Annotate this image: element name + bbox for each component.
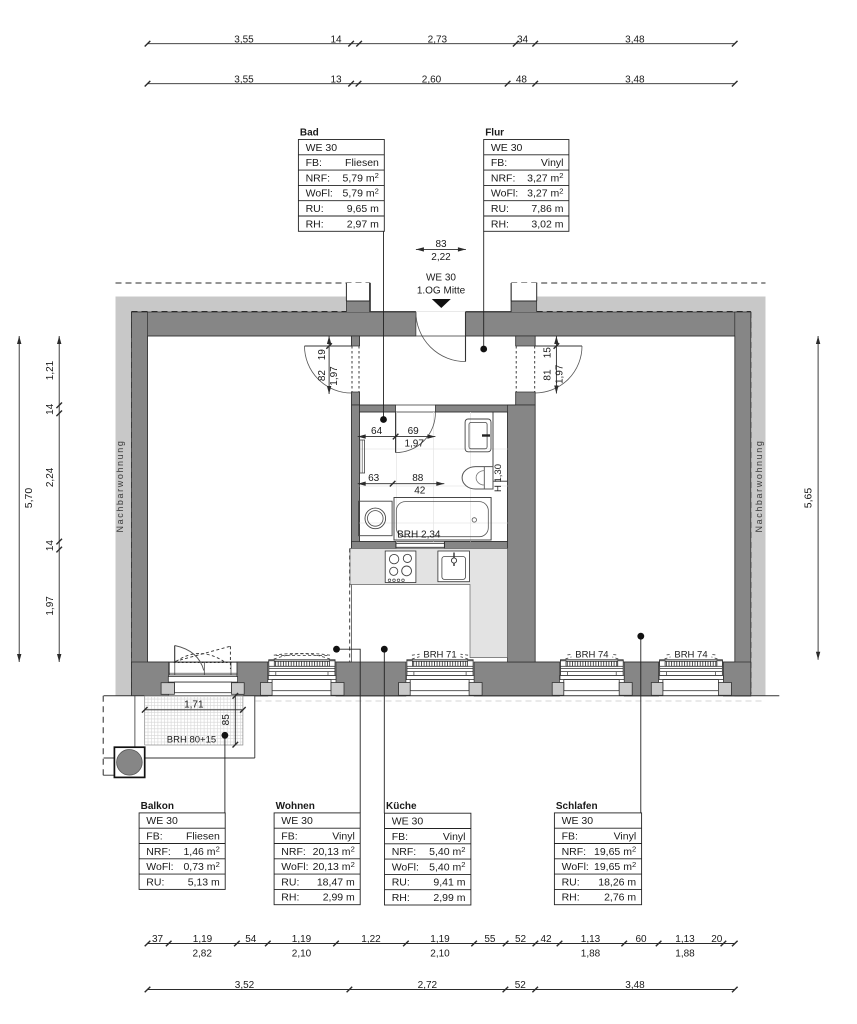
svg-text:WoFl:: WoFl: — [146, 861, 173, 873]
svg-text:69: 69 — [408, 426, 420, 437]
svg-text:WoFl:: WoFl: — [562, 861, 589, 873]
svg-text:3,27 m2: 3,27 m2 — [527, 187, 563, 200]
svg-text:1,88: 1,88 — [581, 949, 601, 960]
svg-text:55: 55 — [484, 934, 496, 945]
svg-text:RH:: RH: — [491, 218, 509, 230]
svg-text:3,48: 3,48 — [625, 74, 645, 85]
svg-text:3,48: 3,48 — [625, 980, 645, 991]
svg-text:1,88: 1,88 — [675, 949, 695, 960]
svg-text:1,97: 1,97 — [45, 596, 56, 616]
svg-text:RH:: RH: — [392, 892, 410, 904]
svg-text:7,86 m: 7,86 m — [531, 203, 563, 215]
svg-text:14: 14 — [45, 540, 56, 552]
svg-text:37: 37 — [152, 934, 164, 945]
svg-text:85: 85 — [221, 714, 232, 726]
svg-text:15: 15 — [542, 347, 553, 359]
svg-text:1,19: 1,19 — [193, 934, 213, 945]
svg-text:WE 30: WE 30 — [281, 815, 313, 827]
svg-text:1,46 m2: 1,46 m2 — [183, 845, 219, 858]
svg-text:20: 20 — [711, 934, 723, 945]
svg-text:WE 30: WE 30 — [491, 142, 523, 154]
svg-text:42: 42 — [414, 485, 426, 496]
svg-text:2,73: 2,73 — [428, 34, 448, 45]
svg-text:BRH 74: BRH 74 — [674, 650, 707, 661]
svg-text:5,40 m2: 5,40 m2 — [429, 845, 465, 858]
svg-text:3,52: 3,52 — [235, 980, 255, 991]
svg-text:FB:: FB: — [281, 831, 297, 843]
svg-text:1,21: 1,21 — [45, 360, 56, 380]
svg-text:1,22: 1,22 — [361, 934, 381, 945]
svg-text:Vinyl: Vinyl — [332, 831, 355, 843]
svg-text:5,65: 5,65 — [803, 488, 815, 509]
svg-text:RU:: RU: — [281, 876, 299, 888]
svg-text:WE 30: WE 30 — [392, 816, 424, 828]
svg-text:NRF:: NRF: — [562, 846, 587, 858]
svg-text:81: 81 — [542, 369, 553, 381]
svg-text:3,55: 3,55 — [234, 34, 254, 45]
svg-text:0,73 m2: 0,73 m2 — [183, 860, 219, 873]
svg-text:NRF:: NRF: — [281, 846, 306, 858]
svg-text:WoFl:: WoFl: — [392, 861, 419, 873]
svg-text:1,19: 1,19 — [292, 934, 312, 945]
svg-text:WE 30: WE 30 — [146, 815, 178, 827]
svg-text:42: 42 — [540, 934, 552, 945]
svg-text:1,19: 1,19 — [430, 934, 450, 945]
svg-text:NRF:: NRF: — [146, 846, 171, 858]
svg-text:82: 82 — [317, 370, 328, 382]
svg-text:48: 48 — [516, 74, 528, 85]
svg-text:5,40 m2: 5,40 m2 — [429, 860, 465, 873]
svg-text:18,26 m: 18,26 m — [598, 876, 636, 888]
svg-text:FB:: FB: — [146, 831, 162, 843]
svg-text:NRF:: NRF: — [392, 846, 417, 858]
svg-text:2,82: 2,82 — [192, 949, 212, 960]
svg-text:Bad: Bad — [300, 128, 319, 139]
svg-text:3,55: 3,55 — [234, 74, 254, 85]
svg-text:RH:: RH: — [306, 218, 324, 230]
svg-text:Wohnen: Wohnen — [276, 801, 315, 812]
svg-text:BRH 74: BRH 74 — [575, 650, 608, 661]
svg-text:63: 63 — [368, 473, 380, 484]
svg-text:NRF:: NRF: — [306, 172, 331, 184]
svg-text:5,79 m2: 5,79 m2 — [343, 187, 379, 200]
svg-text:19: 19 — [317, 349, 328, 361]
svg-text:20,13 m2: 20,13 m2 — [313, 860, 355, 873]
svg-text:19,65 m2: 19,65 m2 — [594, 845, 636, 858]
svg-text:1,13: 1,13 — [675, 934, 695, 945]
svg-text:88: 88 — [412, 473, 424, 484]
svg-text:18,47 m: 18,47 m — [317, 876, 355, 888]
svg-text:WE 30: WE 30 — [562, 815, 594, 827]
svg-text:RU:: RU: — [146, 876, 164, 888]
svg-text:RH:: RH: — [281, 892, 299, 904]
svg-text:52: 52 — [515, 980, 527, 991]
svg-text:1,97: 1,97 — [404, 438, 424, 449]
svg-text:19,65 m2: 19,65 m2 — [594, 860, 636, 873]
svg-text:BRH 80+15: BRH 80+15 — [167, 735, 216, 746]
svg-text:Flur: Flur — [485, 128, 504, 139]
svg-text:2,24: 2,24 — [45, 467, 56, 487]
svg-text:WoFl:: WoFl: — [306, 188, 333, 200]
svg-text:WE 30: WE 30 — [306, 142, 338, 154]
svg-text:Nachbarwohnung: Nachbarwohnung — [115, 440, 125, 533]
svg-text:1.OG Mitte: 1.OG Mitte — [417, 286, 466, 297]
svg-text:2,60: 2,60 — [422, 74, 442, 85]
svg-text:BRH 2,34: BRH 2,34 — [397, 530, 441, 541]
svg-text:5,13 m: 5,13 m — [188, 876, 220, 888]
svg-text:WE 30: WE 30 — [426, 273, 456, 284]
svg-text:FB:: FB: — [392, 831, 408, 843]
svg-text:2,99 m: 2,99 m — [433, 892, 465, 904]
svg-text:60: 60 — [635, 934, 647, 945]
svg-text:14: 14 — [45, 403, 56, 415]
svg-text:1,13: 1,13 — [581, 934, 601, 945]
svg-text:2,99 m: 2,99 m — [323, 892, 355, 904]
svg-text:BRH 71: BRH 71 — [423, 650, 456, 661]
svg-text:2,76 m: 2,76 m — [604, 892, 636, 904]
svg-text:H 1,30: H 1,30 — [493, 464, 504, 492]
svg-text:13: 13 — [330, 74, 342, 85]
svg-text:54: 54 — [245, 934, 257, 945]
svg-text:Schlafen: Schlafen — [556, 801, 598, 812]
svg-text:FB:: FB: — [491, 157, 507, 169]
svg-text:34: 34 — [517, 34, 529, 45]
svg-text:2,10: 2,10 — [430, 949, 450, 960]
svg-text:2,10: 2,10 — [292, 949, 312, 960]
svg-text:9,65 m: 9,65 m — [347, 203, 379, 215]
svg-text:Fliesen: Fliesen — [345, 157, 379, 169]
svg-text:1,97: 1,97 — [555, 364, 566, 384]
svg-text:Küche: Küche — [386, 801, 417, 812]
svg-text:2,97 m: 2,97 m — [347, 218, 379, 230]
svg-text:FB:: FB: — [306, 157, 322, 169]
svg-text:RU:: RU: — [306, 203, 324, 215]
svg-text:Vinyl: Vinyl — [443, 831, 466, 843]
svg-text:Vinyl: Vinyl — [614, 831, 637, 843]
svg-text:WoFl:: WoFl: — [281, 861, 308, 873]
svg-text:RH:: RH: — [562, 892, 580, 904]
svg-text:Vinyl: Vinyl — [541, 157, 564, 169]
svg-text:5,79 m2: 5,79 m2 — [343, 171, 379, 184]
svg-text:52: 52 — [515, 934, 527, 945]
svg-text:14: 14 — [330, 34, 342, 45]
svg-text:20,13 m2: 20,13 m2 — [313, 845, 355, 858]
svg-text:3,48: 3,48 — [625, 34, 645, 45]
svg-text:2,72: 2,72 — [418, 980, 438, 991]
svg-text:2,22: 2,22 — [431, 252, 451, 263]
svg-text:RU:: RU: — [562, 876, 580, 888]
svg-text:3,27 m2: 3,27 m2 — [527, 171, 563, 184]
svg-text:Balkon: Balkon — [141, 801, 174, 812]
svg-text:FB:: FB: — [562, 831, 578, 843]
svg-text:9,41 m: 9,41 m — [433, 877, 465, 889]
svg-text:3,02 m: 3,02 m — [531, 218, 563, 230]
svg-text:RU:: RU: — [392, 877, 410, 889]
svg-text:Nachbarwohnung: Nachbarwohnung — [754, 440, 764, 533]
svg-text:1,97: 1,97 — [329, 366, 340, 386]
svg-text:WoFl:: WoFl: — [491, 188, 518, 200]
svg-text:64: 64 — [371, 426, 383, 437]
svg-text:5,70: 5,70 — [23, 488, 35, 509]
svg-text:Fliesen: Fliesen — [186, 831, 220, 843]
svg-text:RU:: RU: — [491, 203, 509, 215]
svg-text:NRF:: NRF: — [491, 172, 516, 184]
svg-text:83: 83 — [435, 239, 447, 250]
svg-text:1,71: 1,71 — [184, 699, 204, 710]
